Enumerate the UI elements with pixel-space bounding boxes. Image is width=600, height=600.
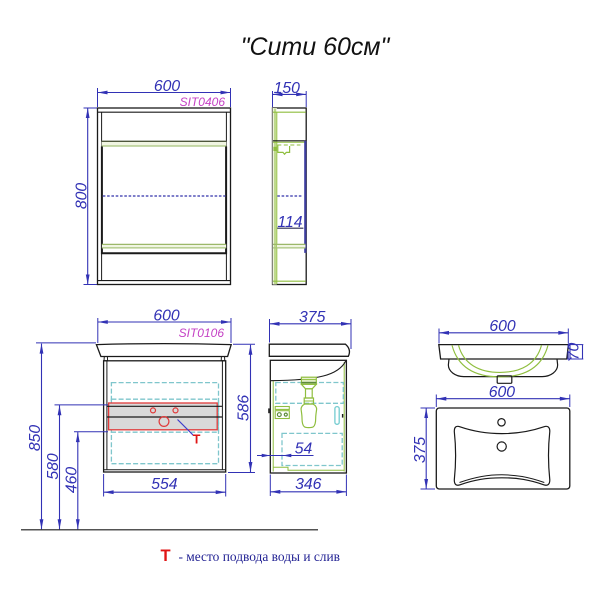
svg-text:586: 586 [236,395,253,422]
svg-text:150: 150 [274,80,301,97]
svg-text:Т: Т [193,433,201,447]
svg-text:346: 346 [295,476,322,493]
svg-text:SIT0106: SIT0106 [179,326,225,340]
svg-text:"Сити 60см": "Сити 60см" [241,33,391,61]
svg-text:600: 600 [489,318,516,335]
svg-text:SIT0406: SIT0406 [180,95,226,109]
svg-text:600: 600 [489,384,516,401]
svg-text:460: 460 [63,467,80,494]
svg-text:800: 800 [73,183,90,210]
svg-text:600: 600 [153,307,180,324]
svg-text:70: 70 [566,343,583,361]
svg-text:850: 850 [27,425,44,452]
svg-text:- место подвода воды и слив: - место подвода воды и слив [179,549,340,564]
svg-text:554: 554 [151,476,178,493]
svg-text:375: 375 [299,309,326,326]
svg-text:Т: Т [161,547,171,565]
svg-text:54: 54 [295,441,313,458]
svg-text:600: 600 [154,78,181,95]
svg-text:114: 114 [277,214,302,231]
svg-text:580: 580 [45,453,62,480]
svg-text:375: 375 [412,437,429,464]
